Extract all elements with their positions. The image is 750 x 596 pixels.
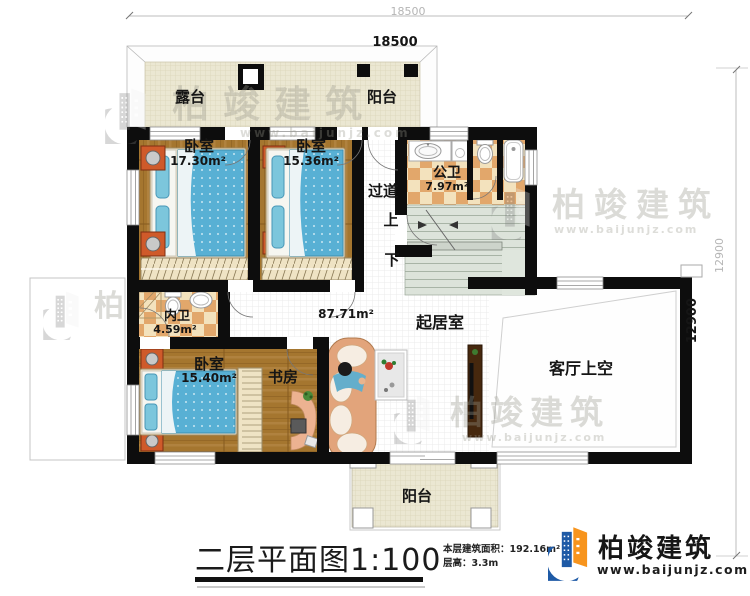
room-label-public-bath: 公卫: [433, 166, 461, 180]
tv-cabinet-icon: [468, 345, 482, 437]
room-area-bedroom2: 15.36m²: [283, 155, 339, 167]
terrace-band: [127, 46, 437, 127]
balcony-post: [353, 508, 373, 528]
room-label-corridor: 过道: [368, 184, 398, 199]
room-label-void: 客厅上空: [549, 361, 613, 377]
tv-icon: [470, 363, 474, 419]
dim-right-outer: 12900: [714, 238, 725, 273]
dim-right-inner: 12900: [686, 298, 699, 343]
stat-floor-area: 本层建筑面积：192.16m²: [443, 541, 560, 555]
dim-top-inner: 18500: [372, 36, 417, 49]
computer-icon: [291, 419, 306, 433]
room-label-ensuite: 内卫: [164, 310, 190, 323]
toilet-icon: [165, 292, 181, 297]
room-area-public-bath: 7.97m²: [425, 181, 468, 192]
coffee-table-icon: [375, 350, 407, 400]
left-roof-outline: [30, 278, 125, 460]
room-label-study: 书房: [268, 370, 298, 385]
room-label-bedroom3: 卧室: [194, 357, 224, 372]
dim-bracket: [681, 265, 702, 277]
brand-logo-icon: [548, 520, 594, 586]
title-underline: [195, 577, 423, 582]
floor-plan-page: 柏竣建筑 www.baijunjz.com 柏竣建筑 www.baijunjz.…: [0, 0, 750, 596]
room-area-bedroom3: 15.40m²: [181, 372, 237, 384]
stair-up-label: 上: [383, 213, 398, 228]
room-label-balcony-bottom: 阳台: [402, 489, 432, 504]
stair-down-label: 下: [384, 253, 399, 268]
brand-url: www.baijunjz.com: [597, 562, 749, 577]
sofa-icon: [328, 338, 376, 460]
room-label-bedroom2: 卧室: [296, 139, 326, 154]
room-area-bedroom1: 17.30m²: [170, 155, 226, 167]
room-area-ensuite: 4.59m²: [153, 324, 196, 335]
balcony-post: [471, 508, 491, 528]
room-label-bedroom1: 卧室: [184, 139, 214, 154]
room-area-living: 87.71m²: [318, 308, 374, 320]
brand-name: 柏竣建筑: [598, 528, 714, 565]
room-label-terrace: 露台: [175, 90, 205, 105]
wardrobe-icon: [141, 258, 352, 280]
drawing-title: 二层平面图1:100: [195, 535, 441, 579]
room-label-balcony-top: 阳台: [367, 90, 397, 105]
dim-top-outer: 18500: [391, 6, 426, 17]
stat-floor-height: 层高：3.3m: [443, 555, 498, 569]
sliding-door: [390, 452, 455, 464]
title-underline-light: [197, 586, 425, 588]
wardrobe-icon: [238, 368, 262, 452]
room-label-living: 起居室: [416, 315, 464, 331]
